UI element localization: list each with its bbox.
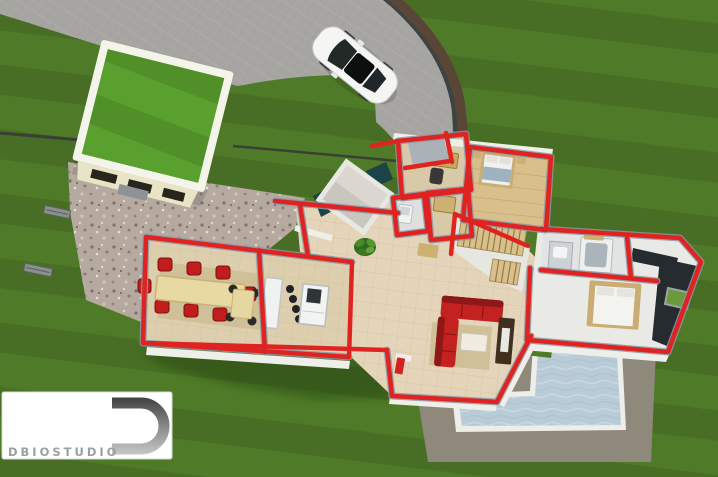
hall-sideboard <box>417 243 439 259</box>
bathroom-vanity <box>548 241 573 270</box>
coffee-table <box>460 333 487 352</box>
sofa-vertical <box>434 316 459 368</box>
bathtub <box>579 237 613 273</box>
bedroom2-bed <box>586 280 641 330</box>
render-canvas: DBIOSTUDIO DBIOSTUDIO <box>0 0 718 477</box>
fridge-unit <box>299 284 329 326</box>
dining-chair <box>155 300 169 313</box>
dining-chair <box>213 308 227 321</box>
dining-chair <box>187 262 201 275</box>
logo-text-mirrored: DBIOSTUDIO <box>8 459 119 473</box>
floorplan-render-svg: DBIOSTUDIO DBIOSTUDIO <box>0 0 718 477</box>
office-chair <box>429 167 444 185</box>
breakfast-table <box>231 289 255 319</box>
staircase-lower-flight <box>489 259 520 285</box>
logo-text: DBIOSTUDIO <box>8 445 119 459</box>
dining-chair <box>216 266 230 279</box>
logo-plate: DBIOSTUDIO <box>2 392 172 459</box>
dining-chair <box>184 304 198 317</box>
logo-reflection: DBIOSTUDIO <box>2 459 172 477</box>
dining-chair <box>158 258 172 271</box>
